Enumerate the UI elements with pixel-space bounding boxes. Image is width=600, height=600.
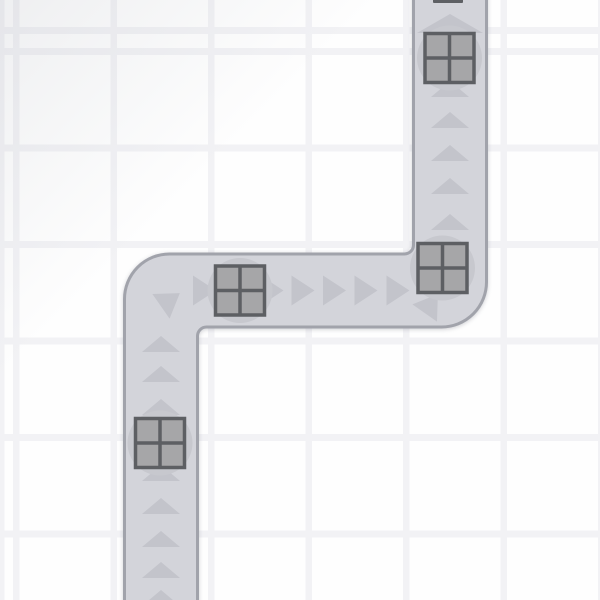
clipped-block-edge (433, 0, 463, 3)
path-block[interactable] (208, 258, 273, 323)
game-viewport (0, 0, 600, 600)
path-block[interactable] (417, 26, 482, 91)
path-block[interactable] (128, 411, 193, 476)
game-canvas[interactable] (0, 0, 600, 600)
path-block[interactable] (410, 236, 475, 301)
